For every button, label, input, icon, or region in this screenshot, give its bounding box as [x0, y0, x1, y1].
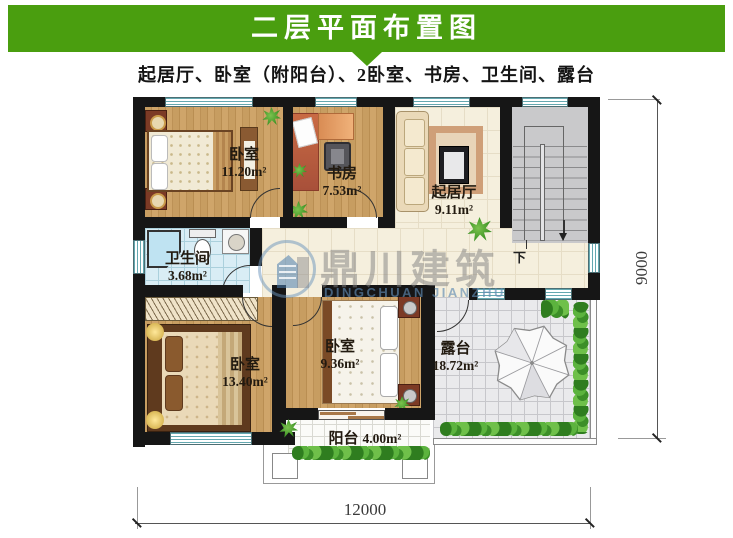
window [588, 243, 600, 273]
terrace-parapet-right [590, 297, 597, 443]
dimension-width-value: 12000 [320, 500, 410, 520]
wall [250, 228, 262, 266]
room-label-balcony: 阳台 4.00m² [300, 430, 430, 448]
wall [385, 408, 435, 420]
room-name: 起居厅 [417, 185, 491, 202]
wall [286, 408, 318, 420]
desk-return [318, 113, 354, 140]
title-banner: 二层平面布置图 [8, 5, 725, 52]
wall [505, 288, 545, 300]
room-label-bedroom-mid: 卧室 9.36m² [299, 339, 381, 372]
room-name: 露台 [408, 341, 503, 358]
room-label-living: 起居厅 9.11m² [417, 185, 491, 218]
wardrobe [145, 297, 258, 321]
sliding-door-panel [320, 412, 356, 415]
wall [572, 288, 600, 300]
page-title: 二层平面布置图 [251, 13, 482, 43]
terrace-plants-bottom [440, 422, 578, 436]
lamp [146, 411, 164, 429]
room-label-bedroom-top: 卧室 11.20m² [198, 147, 290, 180]
wall [378, 217, 395, 228]
wall [383, 107, 395, 228]
dimension-line-bottom [135, 523, 590, 524]
lamp [146, 323, 164, 341]
dimension-line-right [657, 100, 658, 438]
room-area: 7.53m² [312, 183, 372, 199]
room-area: 9.36m² [299, 356, 381, 372]
wall [133, 285, 243, 297]
sliding-door-panel [348, 416, 384, 419]
window [545, 288, 572, 300]
room-name: 卧室 [198, 147, 290, 164]
room-label-study: 书房 7.53m² [312, 166, 372, 199]
window [522, 97, 568, 107]
stairs-down-label: 下 [513, 247, 526, 266]
wall [145, 217, 250, 228]
wall [280, 217, 347, 228]
dimension-guide [608, 99, 660, 100]
terrace-plant-bush [541, 299, 569, 319]
dimension-height-value: 9000 [632, 238, 652, 298]
toilet-tank [189, 229, 216, 238]
stair-rail [540, 144, 545, 241]
room-name: 卧室 [199, 357, 291, 374]
stair-arrow-down-icon [559, 233, 567, 241]
terrace-parapet-bottom [433, 438, 597, 445]
window [315, 97, 357, 107]
nightstand [145, 110, 167, 132]
wall [500, 107, 512, 228]
window [170, 432, 252, 445]
window [165, 97, 253, 107]
room-label-terrace: 露台 18.72m² [408, 341, 503, 374]
room-area: 9.11m² [417, 202, 491, 218]
window [477, 288, 505, 300]
room-area: 13.40m² [199, 374, 291, 390]
room-name: 阳台 [329, 431, 359, 447]
tv [439, 146, 469, 184]
room-label-bathroom: 卫生间 3.68m² [140, 251, 235, 284]
room-area: 18.72m² [408, 358, 503, 374]
floor-plan-page: 二层平面布置图 起居厅、卧室（附阳台）、2卧室、书房、卫生间、露台 [0, 0, 733, 538]
room-name: 书房 [312, 166, 372, 183]
room-area: 4.00m² [363, 431, 402, 446]
room-area: 11.20m² [198, 164, 290, 180]
room-summary: 起居厅、卧室（附阳台）、2卧室、书房、卫生间、露台 [0, 61, 733, 87]
wall [322, 285, 426, 297]
room-area: 3.68m² [140, 268, 235, 284]
room-name: 卧室 [299, 339, 381, 356]
room-name: 卫生间 [140, 251, 235, 268]
window [413, 97, 470, 107]
nightstand [398, 296, 420, 318]
stair-path-tail [526, 240, 527, 249]
wall [588, 97, 600, 243]
room-label-bedroom-left: 卧室 13.40m² [199, 357, 291, 390]
